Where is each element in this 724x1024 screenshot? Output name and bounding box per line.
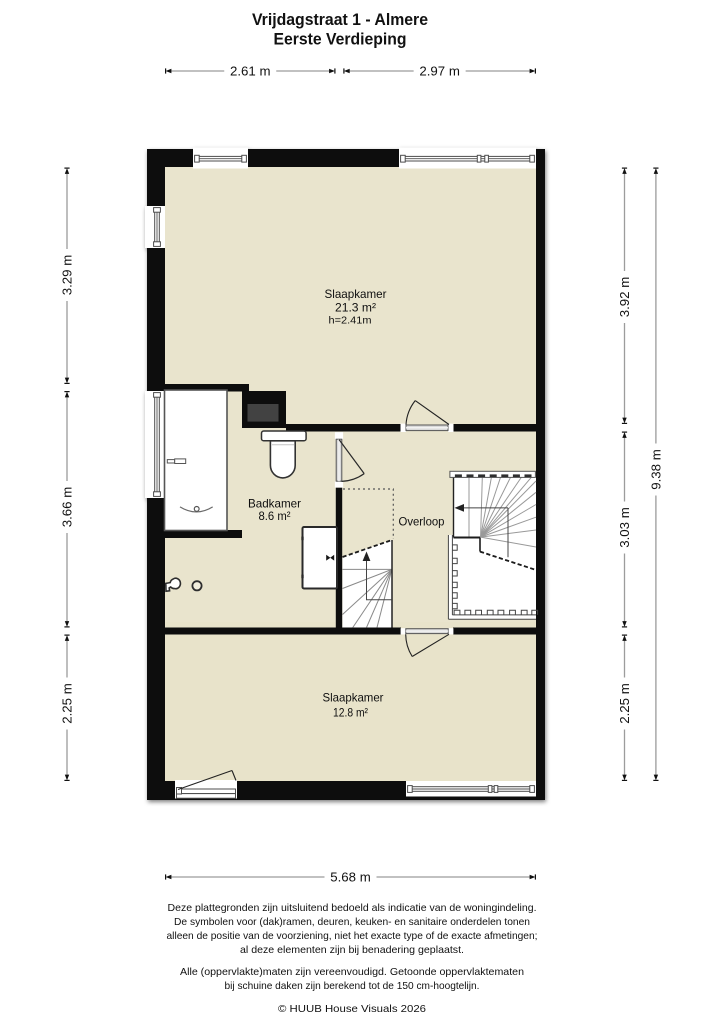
- svg-text:5.68 m: 5.68 m: [330, 870, 371, 885]
- svg-text:2.61 m: 2.61 m: [230, 64, 271, 79]
- svg-text:12.8 m²: 12.8 m²: [333, 707, 368, 720]
- svg-text:3.29 m: 3.29 m: [60, 255, 75, 296]
- svg-text:h=2.41m: h=2.41m: [329, 315, 372, 327]
- svg-text:bij schuine daken zijn bereken: bij schuine daken zijn berekend tot de 1…: [225, 981, 480, 992]
- svg-text:Overloop: Overloop: [399, 516, 445, 529]
- svg-text:al deze elementen zijn bij ben: al deze elementen zijn bij benadering ge…: [240, 945, 464, 956]
- svg-text:2.97 m: 2.97 m: [419, 64, 460, 79]
- svg-text:2.25 m: 2.25 m: [617, 683, 632, 724]
- svg-text:3.03 m: 3.03 m: [617, 507, 632, 548]
- svg-text:© HUUB House Visuals 2026: © HUUB House Visuals 2026: [278, 1004, 426, 1015]
- svg-text:alleen de positie van de voorz: alleen de positie van de voorziening, ni…: [167, 931, 538, 942]
- svg-text:Slaapkamer: Slaapkamer: [325, 288, 387, 301]
- svg-text:9.38 m: 9.38 m: [649, 449, 664, 490]
- svg-text:21.3 m²: 21.3 m²: [335, 302, 376, 315]
- svg-text:2.25 m: 2.25 m: [60, 683, 75, 724]
- svg-text:De symbolen voor (dak)ramen, d: De symbolen voor (dak)ramen, deuren, keu…: [174, 917, 530, 928]
- svg-text:3.66 m: 3.66 m: [60, 487, 75, 528]
- svg-text:Deze plattegronden zijn uitslu: Deze plattegronden zijn uitsluitend bedo…: [168, 903, 537, 914]
- svg-text:Badkamer: Badkamer: [248, 498, 301, 511]
- svg-text:Eerste Verdieping: Eerste Verdieping: [274, 31, 407, 49]
- svg-text:8.6 m²: 8.6 m²: [259, 510, 291, 523]
- svg-text:Vrijdagstraat 1 - Almere: Vrijdagstraat 1 - Almere: [252, 11, 428, 29]
- svg-text:3.92 m: 3.92 m: [617, 277, 632, 318]
- svg-text:Slaapkamer: Slaapkamer: [323, 692, 384, 705]
- svg-text:Alle (oppervlakte)maten zijn v: Alle (oppervlakte)maten zijn vereenvoudi…: [180, 967, 524, 978]
